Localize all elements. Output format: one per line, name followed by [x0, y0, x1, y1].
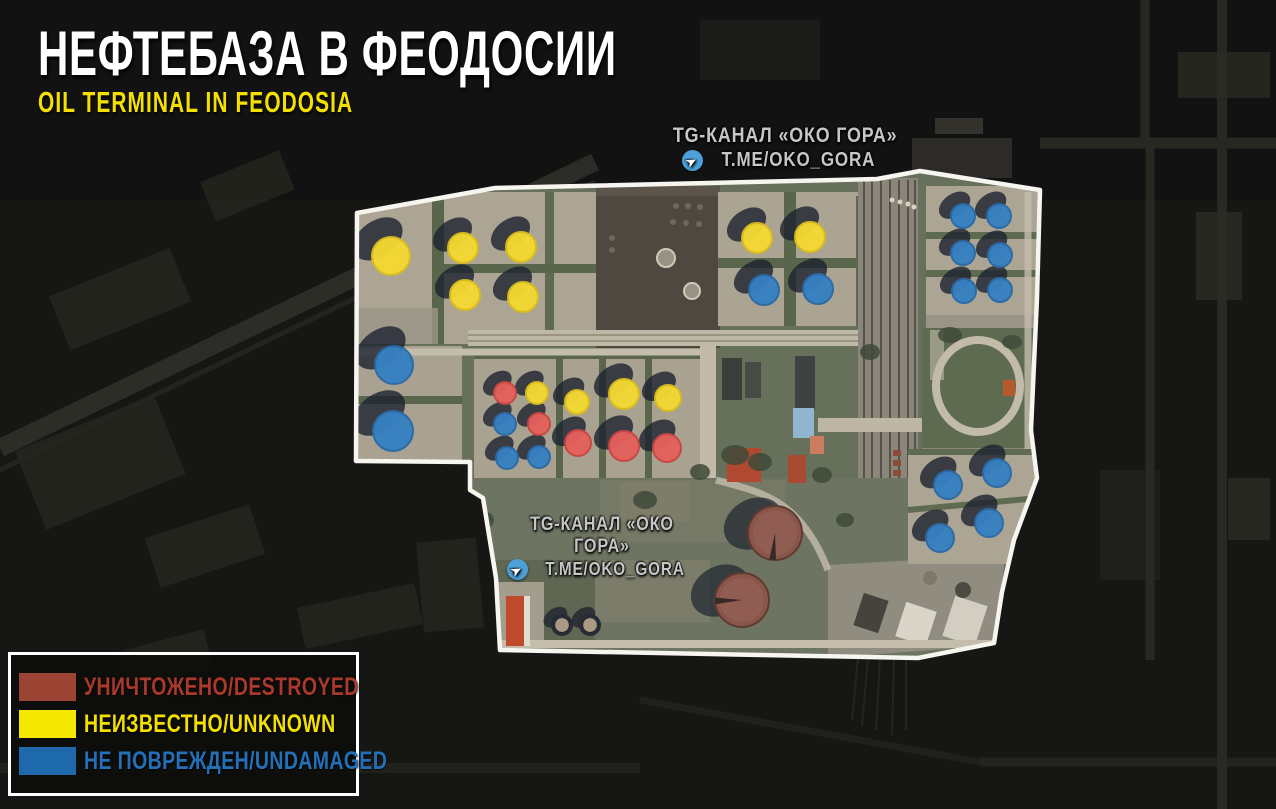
- tank-marker-undamaged: [749, 275, 779, 305]
- dark-pad: [596, 186, 720, 348]
- legend-item-destroyed: УНИЧТОЖЕНО/DESTROYED: [19, 673, 356, 701]
- tank-marker-undamaged: [926, 524, 954, 552]
- tank-marker-undamaged: [373, 411, 413, 451]
- tank-marker-undamaged: [952, 279, 976, 303]
- tank-marker-unknown: [506, 232, 536, 262]
- tank-marker-destroyed: [528, 413, 550, 435]
- tank-marker-undamaged: [496, 447, 518, 469]
- tank-marker-unknown: [655, 385, 681, 411]
- pipe-rack: [468, 330, 876, 346]
- tank-marker-undamaged: [983, 459, 1011, 487]
- tank-top: [583, 618, 597, 632]
- title-block: НЕФТЕБАЗА В ФЕОДОСИИ OIL TERMINAL IN FEO…: [38, 22, 1276, 120]
- tank-marker-undamaged: [951, 204, 975, 228]
- tank-marker-unknown: [609, 379, 639, 409]
- legend-item-unknown: НЕИЗВЕСТНО/UNKNOWN: [19, 710, 356, 738]
- tank-marker-undamaged: [975, 509, 1003, 537]
- tank-marker-unknown: [565, 390, 589, 414]
- telegram-icon: ➤: [682, 150, 703, 171]
- tank-marker-undamaged: [988, 243, 1012, 267]
- unknown-color-swatch: [19, 710, 76, 738]
- tank-marker-undamaged: [934, 471, 962, 499]
- undamaged-color-swatch: [19, 747, 76, 775]
- tank-marker-undamaged: [803, 274, 833, 304]
- legend-label: НЕ ПОВРЕЖДЕН/UNDAMAGED: [84, 747, 387, 776]
- legend: УНИЧТОЖЕНО/DESTROYED НЕИЗВЕСТНО/UNKNOWN …: [8, 652, 359, 796]
- right-middle-area: [922, 328, 1040, 452]
- tank-marker-unknown: [742, 223, 772, 253]
- tank-marker-undamaged: [494, 413, 516, 435]
- tank-marker-destroyed: [609, 431, 639, 461]
- watermark-channel-name: TG-КАНАЛ «ОКО ГОРА»: [509, 514, 696, 558]
- watermark-top: TG-КАНАЛ «ОКО ГОРА» ➤ T.ME/OKO_GORA: [640, 124, 930, 172]
- tank-marker-destroyed: [565, 430, 591, 456]
- infographic-canvas: НЕФТЕБАЗА В ФЕОДОСИИ OIL TERMINAL IN FEO…: [0, 0, 1276, 809]
- watermark-url: T.ME/OKO_GORA: [721, 149, 875, 172]
- tank-marker-undamaged: [987, 204, 1011, 228]
- destroyed-color-swatch: [19, 673, 76, 701]
- tank-marker-unknown: [508, 282, 538, 312]
- tank-marker-unknown: [795, 222, 825, 252]
- page-title: НЕФТЕБАЗА В ФЕОДОСИИ: [38, 20, 617, 86]
- legend-label: УНИЧТОЖЕНО/DESTROYED: [84, 673, 359, 702]
- tank-marker-unknown: [448, 233, 478, 263]
- tank-marker-unknown: [526, 382, 548, 404]
- tank-marker-destroyed: [494, 382, 516, 404]
- tank-marker-destroyed: [653, 434, 681, 462]
- tank-marker-undamaged: [528, 446, 550, 468]
- tank-marker-undamaged: [951, 241, 975, 265]
- page-subtitle: OIL TERMINAL IN FEODOSIA: [38, 87, 353, 120]
- tank-marker-undamaged: [988, 278, 1012, 302]
- legend-label: НЕИЗВЕСТНО/UNKNOWN: [84, 710, 336, 739]
- tank-top: [555, 618, 569, 632]
- tank-marker-undamaged: [375, 346, 413, 384]
- telegram-icon: ➤: [507, 559, 528, 580]
- tank-marker-unknown: [372, 237, 410, 275]
- legend-item-undamaged: НЕ ПОВРЕЖДЕН/UNDAMAGED: [19, 747, 356, 775]
- tank-marker-unknown: [450, 280, 480, 310]
- watermark-channel-name: TG-КАНАЛ «ОКО ГОРА»: [673, 124, 898, 148]
- watermark-middle: TG-КАНАЛ «ОКО ГОРА» ➤ T.ME/OKO_GORA: [492, 514, 712, 580]
- watermark-url: T.ME/OKO_GORA: [545, 559, 684, 580]
